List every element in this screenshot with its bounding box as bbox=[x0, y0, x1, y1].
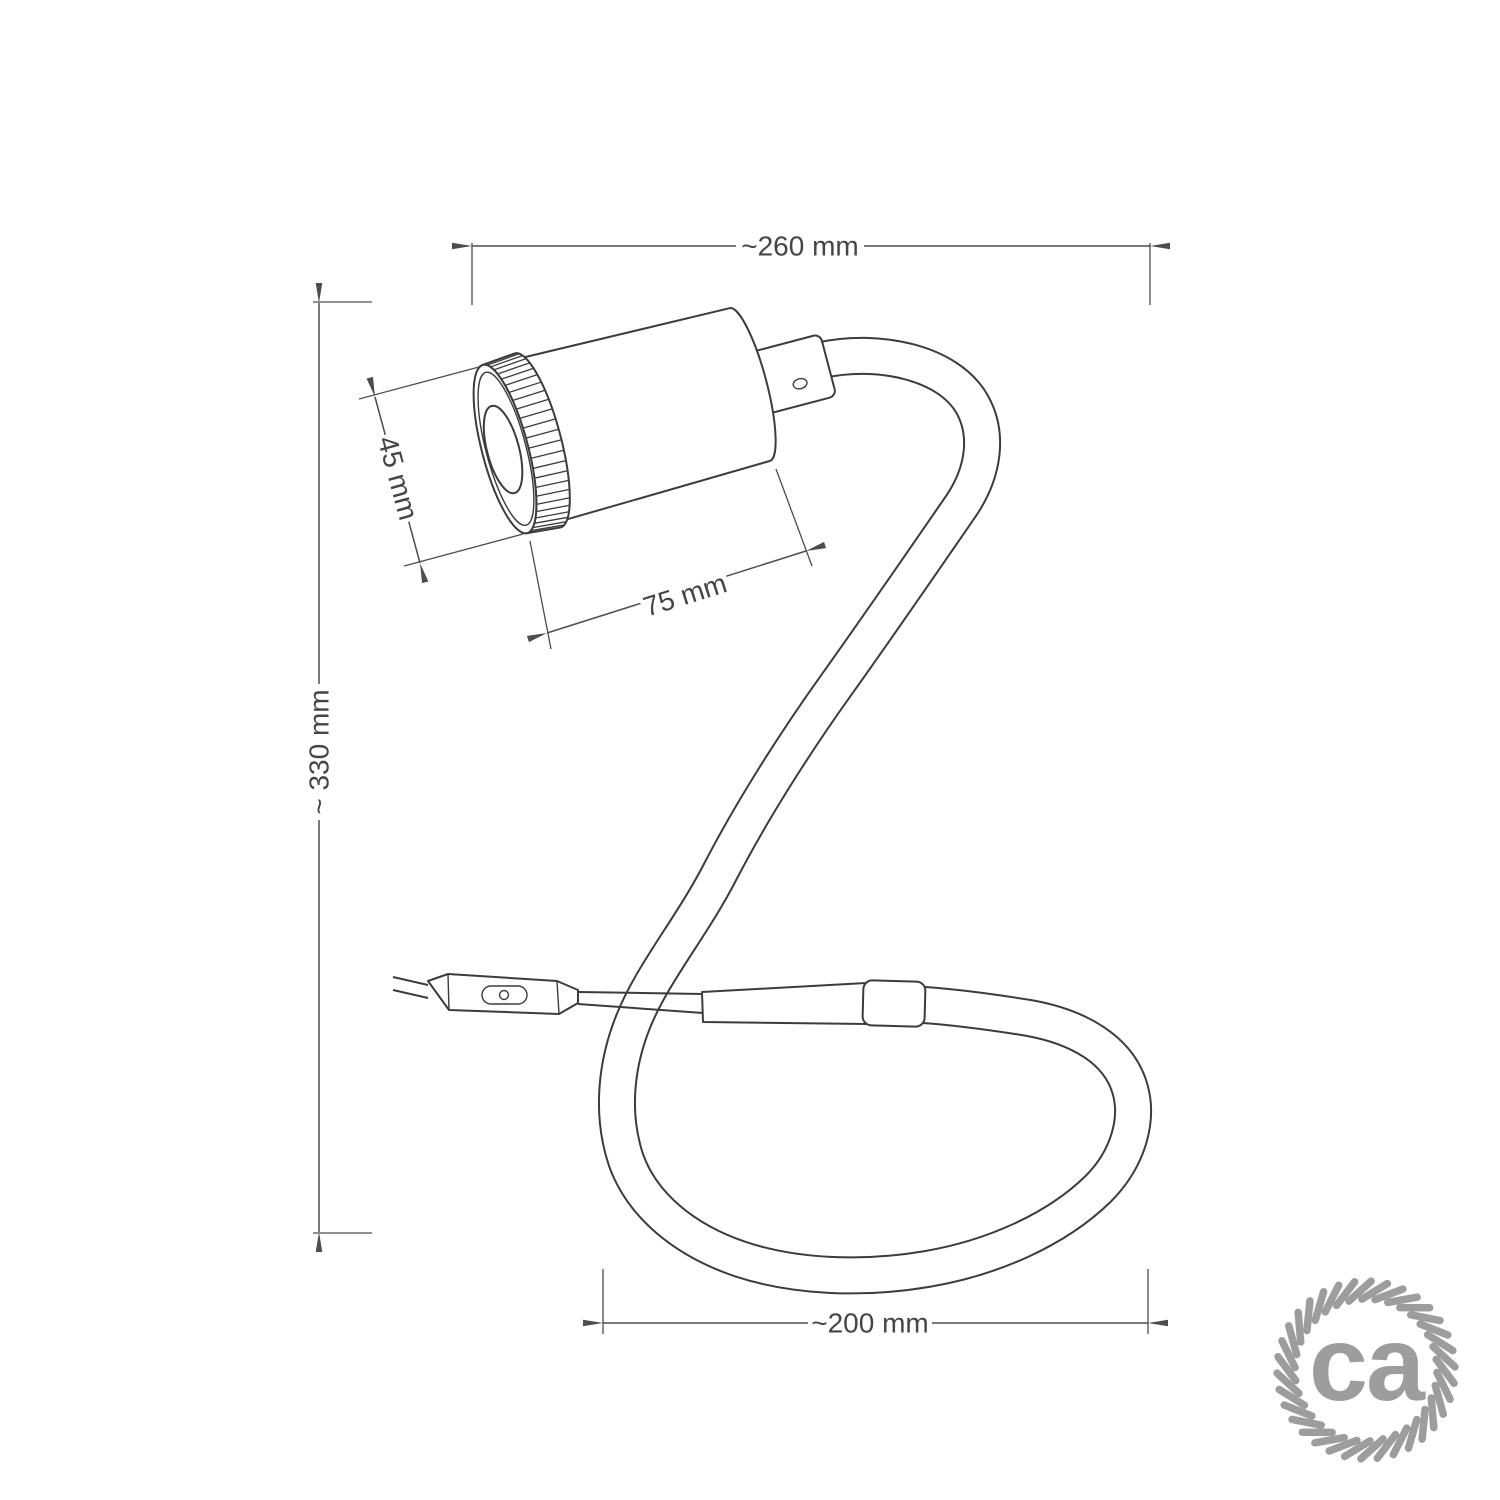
dimension-label: ~ 330 mm bbox=[304, 689, 335, 814]
dimension-label: 75 mm bbox=[640, 567, 731, 622]
brand-logo: ca bbox=[1277, 1281, 1455, 1459]
extension-line bbox=[404, 534, 523, 566]
tube-outline bbox=[617, 356, 1133, 1276]
dimension-overall-height: ~ 330 mm bbox=[303, 302, 372, 1233]
rope-strand bbox=[1298, 1312, 1301, 1342]
dimension-label: 45 mm bbox=[372, 433, 424, 524]
cord-stub-top bbox=[393, 977, 428, 985]
dimension-label: ~260 mm bbox=[741, 231, 859, 262]
gooseneck-tube bbox=[617, 356, 1133, 1276]
cord-stub-bottom bbox=[393, 990, 428, 998]
rope-strand bbox=[1315, 1438, 1344, 1443]
dimension-label: ~200 mm bbox=[811, 1308, 929, 1339]
cable-sleeve bbox=[702, 983, 867, 1024]
rope-strand bbox=[1388, 1297, 1417, 1302]
tube-body-fill bbox=[617, 356, 1133, 1276]
dimension-overall-width: ~260 mm bbox=[472, 230, 1150, 305]
rope-strand bbox=[1431, 1398, 1434, 1428]
extension-line bbox=[776, 469, 812, 566]
ferrule bbox=[862, 980, 925, 1027]
technical-drawing-page: ~260 mm ~ 330 mm 45 mm 75 mm bbox=[0, 0, 1500, 1500]
technical-drawing-canvas: ~260 mm ~ 330 mm 45 mm 75 mm bbox=[0, 0, 1500, 1500]
spotlight-head bbox=[460, 277, 851, 542]
inline-switch bbox=[428, 974, 578, 1014]
switch-bevel-left bbox=[448, 974, 449, 1010]
rope-strand bbox=[1408, 1420, 1416, 1449]
extension-line bbox=[359, 367, 479, 399]
logo-text: ca bbox=[1309, 1305, 1426, 1423]
cord-line-top bbox=[578, 992, 703, 994]
